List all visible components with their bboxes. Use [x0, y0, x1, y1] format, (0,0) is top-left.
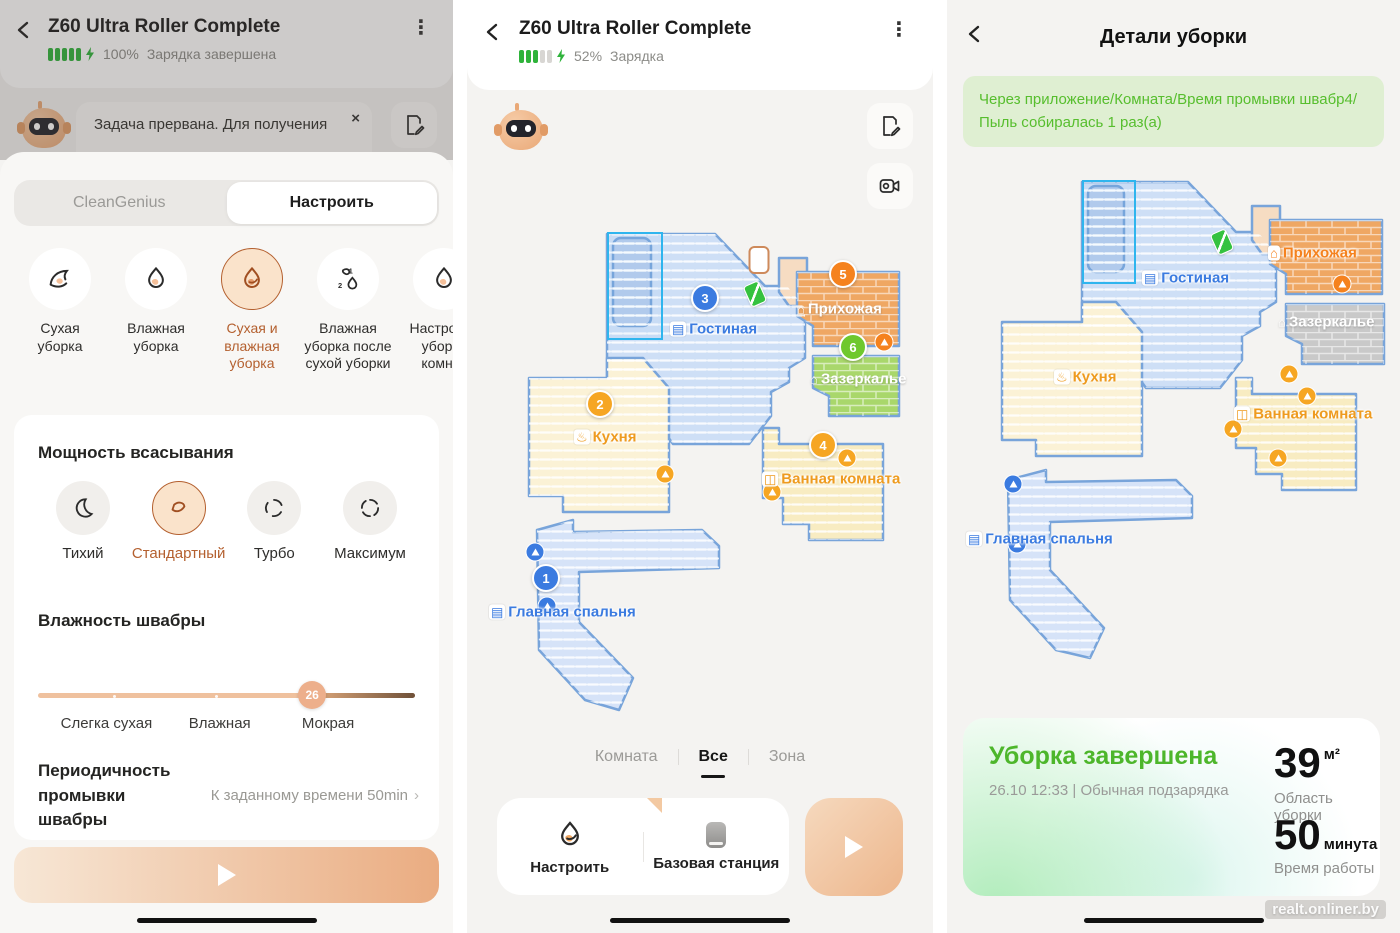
tab-cleangenius[interactable]: CleanGenius	[14, 180, 225, 226]
wet-after-dry-icon: 12	[333, 264, 363, 294]
battery-icon	[519, 49, 566, 63]
chevron-right-icon: ›	[414, 787, 419, 804]
room-icon: ⌂	[810, 373, 818, 386]
panel-clean-settings: Z60 Ultra Roller Complete 100% Зарядка з…	[0, 0, 453, 933]
mop-wash-marker	[1269, 449, 1288, 468]
room-icon: ♨	[1054, 370, 1070, 385]
svg-text:1: 1	[349, 266, 353, 275]
room-order-badge[interactable]: 3	[691, 284, 719, 312]
mode-label: Сухая уборка	[16, 320, 104, 355]
fold-corner	[647, 798, 662, 813]
room-label[interactable]: ▤Главная спальня	[489, 604, 636, 621]
base-station-label: Базовая станция	[653, 855, 779, 872]
mop-wash-marker	[1280, 365, 1299, 384]
suction-label: Тихий	[62, 545, 103, 562]
humidity-title: Влажность швабры	[38, 611, 205, 631]
room-label[interactable]: ⌂Зазеркалье	[1278, 314, 1375, 331]
edit-map-button[interactable]	[867, 103, 913, 149]
clean-settings-sheet: CleanGenius Настроить Сухая уборка Влажн…	[0, 152, 453, 933]
room-icon: ▤	[489, 605, 505, 620]
room-icon: ▤	[670, 322, 686, 337]
room-name: Гостиная	[1161, 270, 1229, 287]
suction-turbo[interactable]: Турбо	[229, 481, 319, 562]
mode-label: Влажная уборка после сухой уборки	[304, 320, 392, 373]
room-icon: ⌂	[797, 303, 805, 316]
home-indicator[interactable]	[137, 918, 317, 923]
mop-wash-marker	[1333, 275, 1352, 294]
room-name: Главная спальня	[508, 604, 635, 621]
room-name: Зазеркалье	[821, 371, 907, 388]
room-label[interactable]: ⌂Зазеркалье	[810, 371, 907, 388]
result-subtitle: 26.10 12:33 | Обычная подзарядка	[989, 782, 1229, 799]
wash-frequency-label: Периодичность промывки швабры	[38, 759, 198, 833]
camera-button[interactable]	[867, 163, 913, 209]
home-indicator[interactable]	[1084, 918, 1264, 923]
edit-map-icon	[878, 114, 902, 138]
mode-dry[interactable]: Сухая уборка	[16, 248, 104, 373]
wash-frequency-value: К заданному времени 50min	[211, 787, 408, 804]
dry-wet-clean-icon	[553, 818, 587, 852]
humidity-value-bubble[interactable]: 26	[298, 681, 326, 709]
mode-dry-wet[interactable]: Сухая и влажная уборка	[208, 248, 296, 373]
room-icon: ◫	[1234, 407, 1250, 422]
sheet-tabs: CleanGenius Настроить	[14, 180, 439, 226]
mode-wet[interactable]: Влажная уборка	[112, 248, 200, 373]
suction-standard[interactable]: Стандартный	[134, 481, 224, 562]
panel-map-home: Z60 Ultra Roller Complete 52% Зарядка ⋮	[467, 0, 933, 933]
customize-button[interactable]: Настроить	[497, 818, 643, 876]
room-order-badge[interactable]: 6	[839, 333, 867, 361]
room-label[interactable]: ♨Кухня	[574, 429, 637, 446]
mop-wash-frequency-row[interactable]: Периодичность промывки швабры К заданном…	[38, 759, 419, 833]
room-name: Зазеркалье	[1289, 314, 1375, 331]
tab-room[interactable]: Комната	[595, 748, 658, 766]
home-indicator[interactable]	[610, 918, 790, 923]
device-header: Z60 Ultra Roller Complete 52% Зарядка ⋮	[467, 0, 933, 90]
play-icon	[218, 864, 236, 886]
clean-result-card: Уборка завершена 26.10 12:33 | Обычная п…	[963, 718, 1380, 896]
humidity-label: Слегка сухая	[61, 715, 153, 732]
time-value: 50минута	[1274, 814, 1377, 856]
room-icon: ▤	[1142, 271, 1158, 286]
room-label[interactable]: ⌂Прихожая	[1268, 245, 1357, 262]
room-name: Гостиная	[689, 321, 757, 338]
floor-map-history[interactable]: ▤Гостиная⌂Прихожая⌂Зазеркалье♨Кухня◫Ванн…	[947, 150, 1400, 710]
tab-customize[interactable]: Настроить	[227, 182, 438, 224]
battery-status: Зарядка	[610, 48, 664, 64]
play-icon	[845, 836, 863, 858]
humidity-label: Влажная	[189, 715, 251, 732]
mop-wash-marker	[656, 465, 675, 484]
wet-clean-icon	[141, 264, 171, 294]
room-name: Прихожая	[808, 301, 882, 318]
tab-zone[interactable]: Зона	[769, 748, 805, 766]
watermark: realt.onliner.by	[1265, 900, 1386, 919]
room-order-badge[interactable]: 1	[532, 564, 560, 592]
device-title: Z60 Ultra Roller Complete	[519, 18, 751, 40]
room-label[interactable]: ▤Главная спальня	[966, 531, 1113, 548]
details-header: Детали уборки	[947, 0, 1400, 60]
turbo-fan-icon	[261, 495, 287, 521]
area-unit: м²	[1324, 746, 1340, 763]
clean-summary-banner: Через приложение/Комната/Время промывки …	[963, 76, 1384, 147]
suction-label: Турбо	[254, 545, 295, 562]
mode-wet-after-dry[interactable]: 12 Влажная уборка после сухой уборки	[304, 248, 392, 373]
modal-dim-overlay	[0, 0, 453, 160]
tab-all[interactable]: Все	[699, 748, 728, 766]
time-label: Время работы	[1274, 860, 1374, 877]
battery-percent: 52%	[574, 48, 602, 64]
room-name: Прихожая	[1283, 245, 1357, 262]
robot-avatar[interactable]	[495, 102, 547, 154]
base-station-button[interactable]: Базовая станция	[644, 822, 790, 872]
suction-max[interactable]: Максимум	[325, 481, 415, 562]
room-name: Ванная комната	[1253, 406, 1372, 423]
room-clean-settings-icon	[429, 264, 453, 294]
map-mode-tabs: Комната Все Зона	[467, 748, 933, 766]
dry-clean-icon	[45, 264, 75, 294]
room-label[interactable]: ◫Ванная комната	[1234, 406, 1372, 423]
room-label[interactable]: ⌂Прихожая	[797, 301, 882, 318]
humidity-label: Мокрая	[302, 715, 354, 732]
more-menu-icon[interactable]: ⋮	[889, 20, 909, 40]
floor-map-rooms	[947, 150, 1400, 710]
room-name: Кухня	[1073, 369, 1117, 386]
mop-wash-marker	[1298, 387, 1317, 406]
room-icon: ⌂	[1268, 246, 1280, 261]
area-selection-rect[interactable]	[1082, 180, 1136, 284]
dry-wet-clean-icon	[237, 264, 267, 294]
suction-quiet[interactable]: Тихий	[38, 481, 128, 562]
result-title: Уборка завершена	[989, 742, 1217, 771]
room-label[interactable]: ▤Гостиная	[670, 321, 757, 338]
base-station-icon	[706, 822, 726, 848]
room-name: Кухня	[593, 429, 637, 446]
page-title: Детали уборки	[947, 26, 1400, 49]
room-order-badge[interactable]: 5	[829, 260, 857, 288]
mop-wash-marker	[526, 543, 545, 562]
screenshot-stage: Z60 Ultra Roller Complete 100% Зарядка з…	[0, 0, 1400, 933]
area-value: 39м²	[1274, 742, 1340, 784]
mop-wash-marker	[838, 449, 857, 468]
back-icon[interactable]	[483, 22, 503, 42]
panel-clean-details: Детали уборки Через приложение/Комната/В…	[947, 0, 1400, 933]
room-label[interactable]: ▤Гостиная	[1142, 270, 1229, 287]
room-label[interactable]: ◫Ванная комната	[762, 471, 900, 488]
room-label[interactable]: ♨Кухня	[1054, 369, 1117, 386]
settings-card: Мощность всасывания Тихий Стандартный Ту…	[14, 415, 439, 840]
suction-label: Максимум	[334, 545, 406, 562]
dock-marker	[749, 246, 770, 274]
area-selection-rect[interactable]	[607, 232, 663, 340]
mode-label: Сухая и влажная уборка	[208, 320, 296, 373]
mode-label: Настройка уборки комнат	[400, 320, 453, 373]
room-icon: ▤	[966, 532, 982, 547]
floor-map[interactable]: 356241▤Гостиная⌂Прихожая⌂Зазеркалье♨Кухн…	[467, 230, 933, 745]
room-icon: ♨	[574, 430, 590, 445]
room-order-badge[interactable]: 4	[809, 431, 837, 459]
mop-wash-marker	[1004, 475, 1023, 494]
room-icon: ◫	[762, 472, 778, 487]
time-unit: минута	[1324, 836, 1378, 853]
start-button[interactable]	[805, 798, 903, 896]
mode-label: Влажная уборка	[112, 320, 200, 355]
mop-wash-marker	[875, 333, 894, 352]
action-card: Настроить Базовая станция	[497, 798, 789, 895]
room-order-badge[interactable]: 2	[586, 390, 614, 418]
start-cleaning-button[interactable]	[14, 847, 439, 903]
suction-options: Тихий Стандартный Турбо Максимум	[38, 481, 415, 562]
quiet-moon-icon	[70, 495, 96, 521]
battery-row: 52% Зарядка	[519, 48, 664, 64]
mode-room-settings[interactable]: Настройка уборки комнат	[400, 248, 453, 373]
clean-mode-row: Сухая уборка Влажная уборка Сухая и влаж…	[16, 248, 453, 373]
room-name: Ванная комната	[781, 471, 900, 488]
mop-humidity-slider[interactable]: 26	[38, 681, 415, 709]
svg-text:2: 2	[338, 281, 342, 290]
max-fan-icon	[357, 495, 383, 521]
camera-icon	[878, 174, 902, 198]
room-name: Главная спальня	[985, 531, 1112, 548]
room-icon: ⌂	[1278, 316, 1286, 329]
standard-fan-icon	[166, 495, 192, 521]
suction-label: Стандартный	[132, 545, 226, 562]
customize-label: Настроить	[530, 859, 609, 876]
suction-title: Мощность всасывания	[38, 443, 234, 463]
